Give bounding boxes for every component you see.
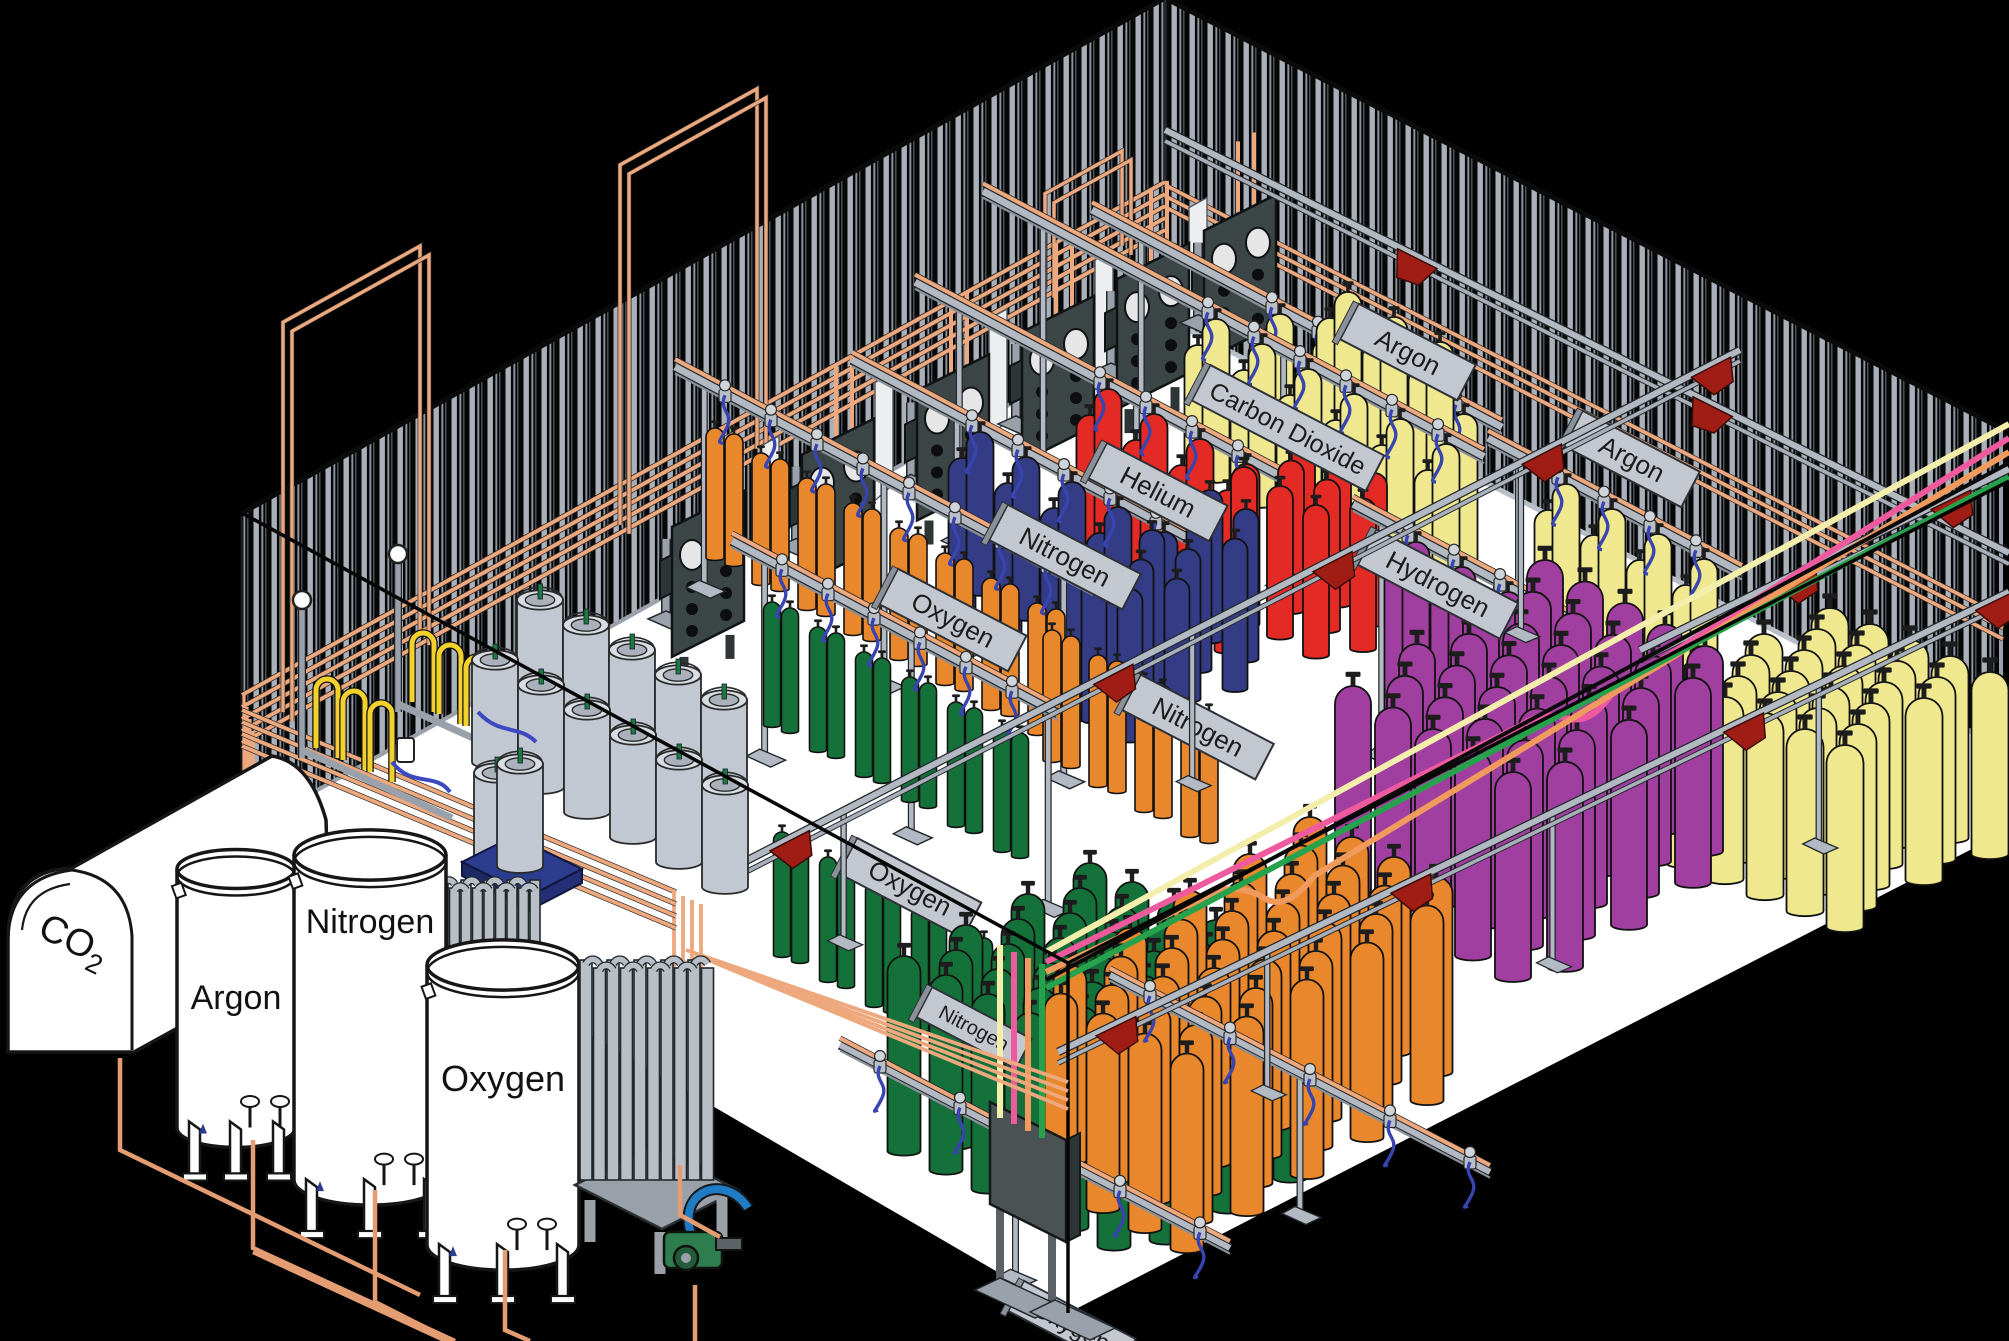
svg-text:Oxygen: Oxygen bbox=[441, 1058, 565, 1099]
svg-text:Argon: Argon bbox=[191, 979, 282, 1017]
svg-text:Nitrogen: Nitrogen bbox=[306, 903, 435, 941]
